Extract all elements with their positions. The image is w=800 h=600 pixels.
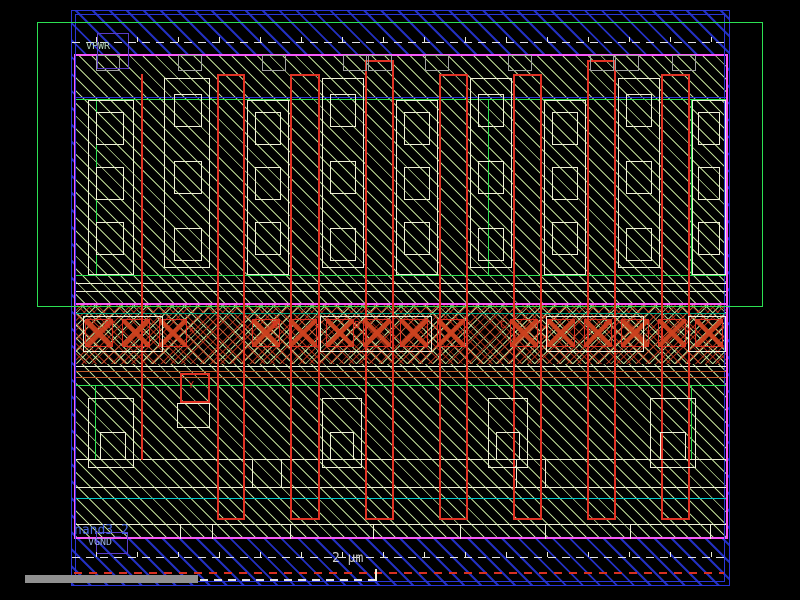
layout-rect [343, 55, 367, 71]
layout-rect [252, 459, 253, 487]
contact-cut [289, 319, 317, 347]
layout-rect [76, 371, 726, 372]
vpwr-port-label: VPWR [86, 42, 110, 52]
layout-rect [513, 74, 542, 76]
layout-rect [76, 377, 726, 378]
scale-bar-label: 2 µm [332, 552, 363, 565]
layout-rect [404, 167, 430, 200]
layout-rect [76, 524, 726, 525]
ruler-tick [260, 37, 261, 42]
layout-rect [255, 112, 281, 145]
layout-rect [404, 222, 430, 255]
layout-rect [330, 432, 354, 460]
layout-rect [76, 283, 726, 284]
layout-rect [330, 161, 356, 194]
layout-rect [217, 518, 245, 520]
layout-rect [375, 569, 377, 581]
ruler-tick [424, 37, 425, 42]
layout-rect [688, 316, 726, 352]
contact-cut [437, 319, 465, 347]
layout-rect [661, 518, 690, 520]
layout-rect [626, 161, 652, 194]
ruler-tick [670, 37, 671, 42]
ruler-tick [342, 37, 343, 42]
layout-rect [698, 167, 720, 200]
layout-rect [318, 74, 320, 520]
layout-rect [661, 74, 690, 76]
layout-rect [76, 366, 726, 367]
layout-rect [392, 60, 394, 520]
cell-name-label: nand3_2 [74, 524, 129, 537]
pin-label-x: x [686, 326, 691, 335]
layout-rect [174, 94, 202, 127]
ruler-tick [588, 37, 589, 42]
layout-rect [83, 316, 163, 352]
layout-rect [626, 228, 652, 261]
layout-rect [76, 291, 726, 292]
layout-rect [552, 222, 578, 255]
layout-rect [365, 518, 394, 520]
layout-rect [96, 112, 124, 145]
ruler-tick [711, 552, 712, 557]
layout-rect [243, 74, 245, 520]
ruler-tick [547, 37, 548, 42]
layout-rect [508, 55, 532, 71]
layout-rect [174, 161, 202, 194]
pin-label-B: B [272, 321, 278, 331]
ruler-tick [465, 552, 466, 557]
layout-rect [466, 74, 468, 520]
layout-rect [217, 74, 245, 76]
layout-rect [660, 432, 686, 460]
layout-rect [174, 228, 202, 261]
layout-rect [513, 518, 542, 520]
layout-rect [262, 55, 286, 71]
ruler-tick [260, 552, 261, 557]
layout-rect [478, 161, 504, 194]
pin-label-C: C [500, 321, 506, 331]
layout-rect [76, 385, 726, 386]
layout-rect [439, 74, 468, 76]
ruler-tick [383, 37, 384, 42]
layout-rect [439, 518, 468, 520]
layout-rect [96, 222, 124, 255]
pin-label-C: C [603, 321, 609, 331]
layout-rect [212, 524, 213, 539]
layout-rect [290, 74, 320, 76]
ruler-tick [424, 552, 425, 557]
ruler-tick [670, 552, 671, 557]
layout-rect [710, 524, 711, 539]
ruler-tick [178, 37, 179, 42]
layout-rect [545, 524, 546, 539]
layout-rect [630, 524, 631, 539]
layout-rect [281, 459, 282, 487]
layout-rect [100, 432, 126, 460]
layout-rect [540, 74, 542, 520]
layout-rect [496, 432, 520, 460]
layout-rect [76, 313, 726, 314]
layout-rect [180, 373, 210, 403]
contact-cut [510, 319, 538, 347]
layout-canvas[interactable]: AxBBCCxY VPWR nand3_2 VGND 2 µm [0, 0, 800, 600]
layout-rect [552, 112, 578, 145]
vgnd-port-label: VGND [88, 538, 112, 548]
layout-rect [587, 518, 616, 520]
layout-rect [290, 524, 291, 539]
ruler-tick [547, 552, 548, 557]
layout-rect [552, 167, 578, 200]
contact-cut [159, 319, 187, 347]
ruler-tick [178, 552, 179, 557]
layout-rect [177, 403, 210, 428]
layout-rect [180, 524, 181, 539]
layout-rect [320, 316, 432, 352]
layout-rect [365, 60, 367, 520]
ruler-tick [137, 37, 138, 42]
ruler-tick [219, 37, 220, 42]
ruler-tick [301, 37, 302, 42]
layout-rect [76, 459, 726, 460]
layout-rect [141, 74, 143, 460]
layout-rect [255, 167, 281, 200]
ruler-tick [137, 552, 138, 557]
ruler-tick [588, 552, 589, 557]
ruler-tick [506, 37, 507, 42]
layout-rect [76, 275, 726, 276]
layout-rect [76, 498, 726, 499]
ruler-tick [506, 552, 507, 557]
layout-rect [72, 42, 730, 43]
ruler-tick [465, 37, 466, 42]
layout-rect [615, 55, 639, 71]
layout-rect [425, 55, 449, 71]
layout-rect [516, 459, 517, 487]
ruler-tick [629, 37, 630, 42]
pin-label-Y: Y [188, 381, 194, 391]
layout-rect [698, 222, 720, 255]
layout-rect [614, 60, 616, 520]
layout-rect [439, 74, 441, 520]
layout-rect [255, 222, 281, 255]
layout-rect [330, 94, 356, 127]
layout-rect [478, 228, 504, 261]
layout-rect [368, 55, 392, 71]
layout-rect [25, 575, 198, 583]
layout-rect [587, 60, 589, 520]
layout-rect [72, 557, 730, 558]
layout-rect [290, 74, 292, 520]
ruler-tick [219, 552, 220, 557]
layout-rect [460, 524, 461, 539]
layout-rect [178, 55, 202, 71]
ruler-tick [96, 552, 97, 557]
layout-rect [200, 579, 377, 581]
layout-rect [404, 112, 430, 145]
ruler-tick [383, 552, 384, 557]
layout-rect [217, 74, 219, 520]
ruler-tick [629, 552, 630, 557]
layout-rect [373, 524, 374, 539]
layout-rect [672, 55, 696, 71]
layout-rect [96, 167, 124, 200]
ruler-tick [301, 552, 302, 557]
pin-label-A: A [104, 321, 110, 331]
layout-rect [76, 487, 726, 488]
pin-label-x: x [189, 326, 194, 335]
layout-rect [76, 303, 726, 305]
layout-rect [330, 228, 356, 261]
ruler-tick [711, 37, 712, 42]
layout-rect [478, 94, 504, 127]
layout-rect [626, 94, 652, 127]
layout-rect [545, 459, 546, 487]
pin-label-B: B [354, 321, 360, 331]
contact-cut [658, 319, 686, 347]
layout-rect [74, 572, 724, 574]
layout-rect [698, 112, 720, 145]
layout-rect [290, 518, 320, 520]
layout-rect [546, 316, 644, 352]
layout-rect [590, 55, 614, 71]
